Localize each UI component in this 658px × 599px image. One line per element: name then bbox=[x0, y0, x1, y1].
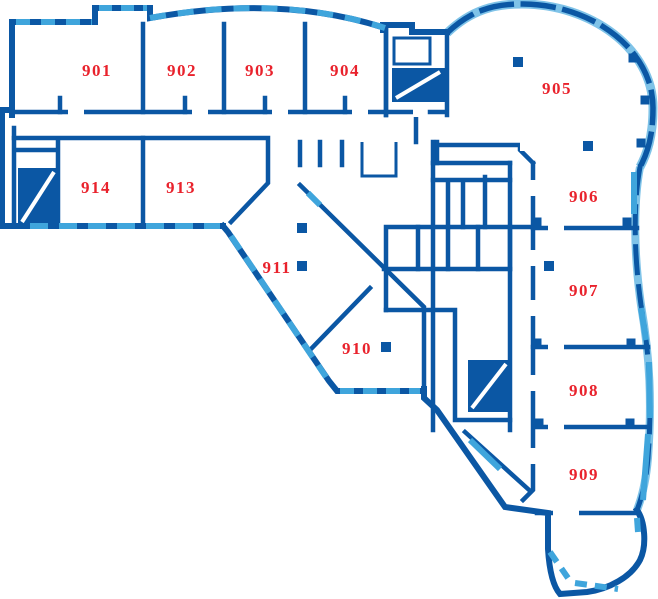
column-marker bbox=[544, 261, 554, 271]
room-label-903: 903 bbox=[245, 61, 275, 80]
door-post bbox=[533, 218, 542, 227]
column-marker bbox=[583, 141, 593, 151]
room-label-911: 911 bbox=[262, 258, 291, 277]
door-post bbox=[629, 54, 638, 63]
room-label-901: 901 bbox=[82, 61, 112, 80]
column-marker bbox=[297, 223, 307, 233]
room-label-905: 905 bbox=[542, 79, 572, 98]
room-label-904: 904 bbox=[330, 61, 360, 80]
room-label-914: 914 bbox=[81, 178, 111, 197]
door-post bbox=[626, 419, 635, 428]
room-label-909: 909 bbox=[569, 465, 599, 484]
door-post bbox=[637, 139, 646, 148]
door-post bbox=[535, 419, 544, 428]
room-label-902: 902 bbox=[167, 61, 197, 80]
column-marker bbox=[381, 342, 391, 352]
floor-plan: 901902903904905906907908909910911913914 bbox=[0, 0, 658, 599]
room-label-908: 908 bbox=[569, 381, 599, 400]
door-post bbox=[623, 218, 632, 227]
room-label-906: 906 bbox=[569, 187, 599, 206]
room-label-910: 910 bbox=[342, 339, 372, 358]
room-label-907: 907 bbox=[569, 281, 599, 300]
door-post bbox=[533, 339, 542, 348]
room-label-913: 913 bbox=[166, 178, 196, 197]
door-post bbox=[641, 96, 650, 105]
floor-plan-svg: 901902903904905906907908909910911913914 bbox=[0, 0, 658, 599]
column-marker bbox=[513, 57, 523, 67]
column-marker bbox=[297, 261, 307, 271]
door-post bbox=[627, 339, 636, 348]
